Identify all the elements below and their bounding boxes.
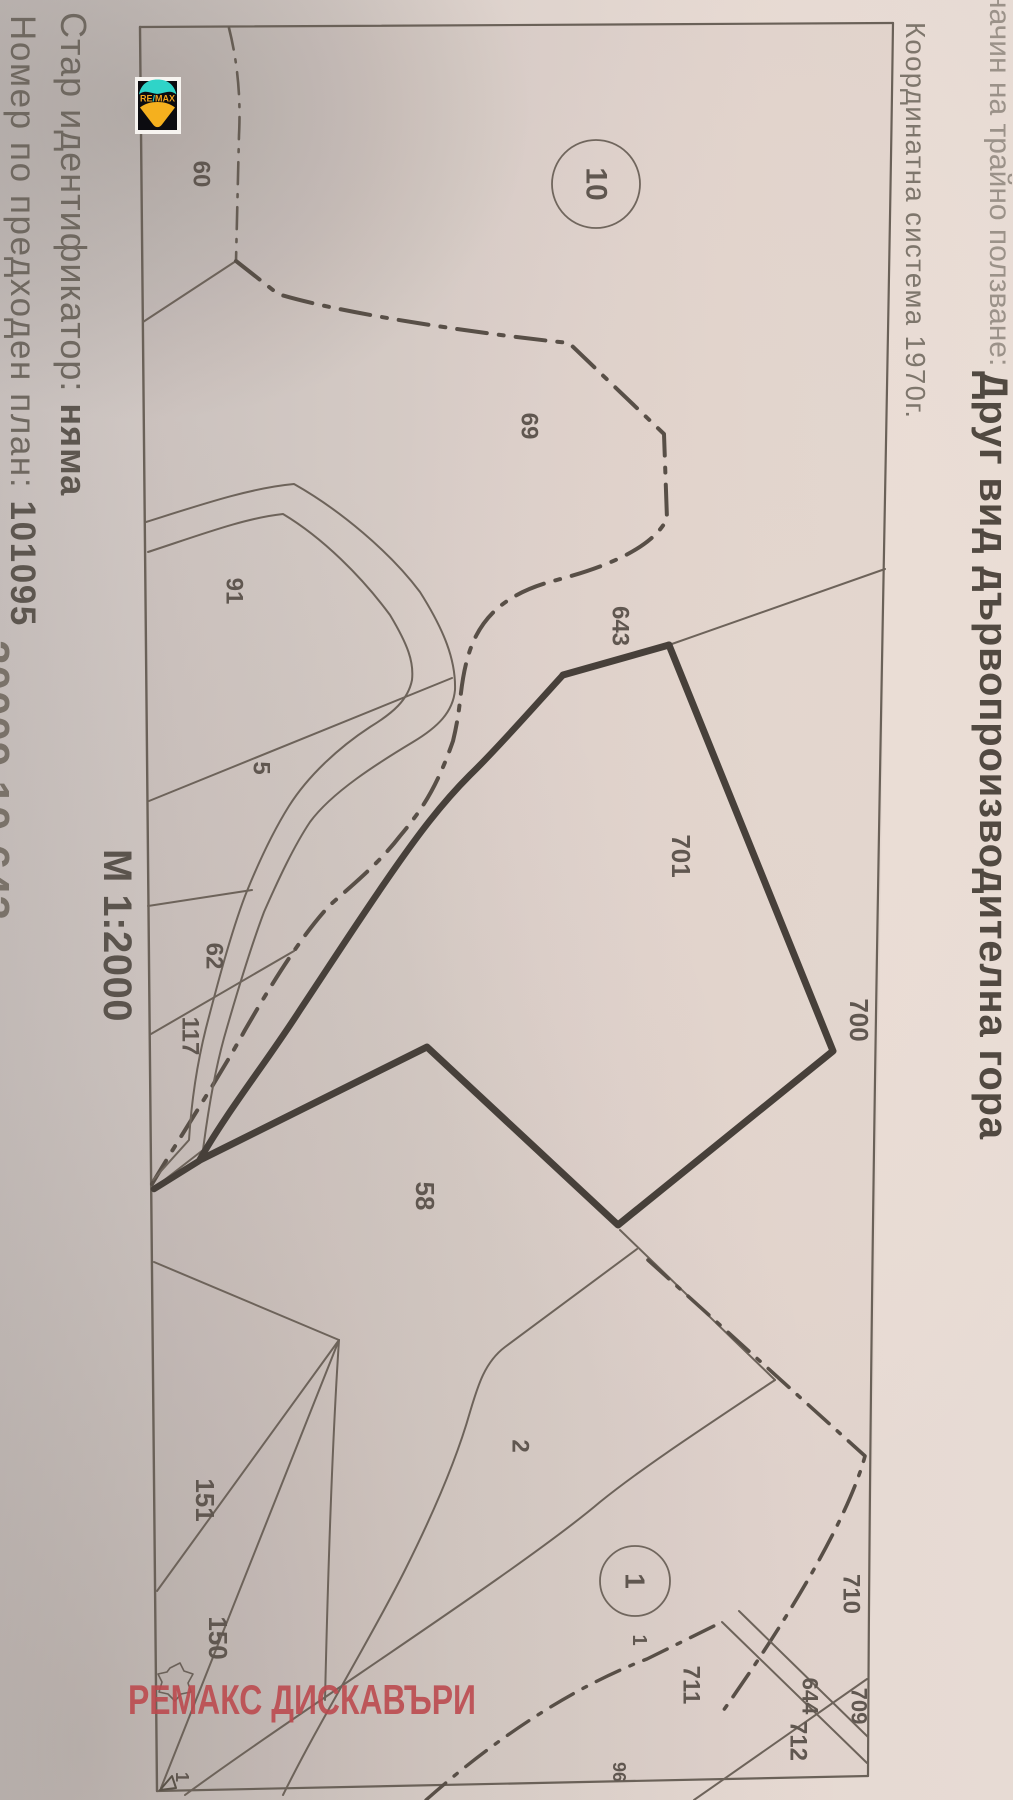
svg-text:1: 1 [628, 1634, 650, 1645]
svg-text:начин на трайно ползване:: начин на трайно ползване: [983, 0, 1013, 366]
svg-text:700: 700 [844, 998, 874, 1041]
svg-text:10: 10 [580, 167, 613, 200]
svg-text:Стар идентификатор: няма: Стар идентификатор: няма [53, 12, 94, 496]
svg-text:1: 1 [172, 1772, 192, 1782]
svg-text:Координатна система 1970г.: Координатна система 1970г. [900, 22, 931, 419]
svg-text:Номер по предходен план: 10109: Номер по предходен план: 101095 [3, 15, 42, 627]
svg-text:117: 117 [177, 1017, 204, 1056]
svg-text:96: 96 [609, 1762, 629, 1782]
svg-text:20009.10.643: 20009.10.643 [0, 640, 18, 921]
svg-text:69: 69 [516, 413, 543, 440]
svg-text:5: 5 [248, 761, 275, 774]
svg-text:710: 710 [838, 1574, 865, 1614]
svg-text:151: 151 [190, 1478, 220, 1521]
svg-text:150: 150 [203, 1616, 233, 1659]
svg-text:РЕМАКС ДИСКАВЪРИ: РЕМАКС ДИСКАВЪРИ [128, 1676, 476, 1723]
svg-text:711: 711 [678, 1666, 705, 1705]
svg-text:701: 701 [666, 834, 696, 877]
svg-text:2: 2 [507, 1439, 534, 1452]
svg-text:58: 58 [410, 1182, 440, 1211]
svg-text:60: 60 [188, 161, 215, 188]
svg-text:М 1:2000: М 1:2000 [95, 849, 139, 1022]
svg-text:91: 91 [221, 578, 248, 605]
svg-text:712: 712 [785, 1721, 812, 1761]
svg-text:1: 1 [620, 1573, 651, 1589]
svg-text:Друг вид дървопроизводителна г: Друг вид дървопроизводителна гора [971, 371, 1013, 1140]
svg-text:643: 643 [607, 606, 634, 646]
svg-text:RE/MAX: RE/MAX [140, 94, 175, 104]
svg-text:644: 644 [798, 1678, 823, 1715]
svg-text:62: 62 [201, 943, 228, 970]
svg-text:709: 709 [847, 1688, 872, 1725]
